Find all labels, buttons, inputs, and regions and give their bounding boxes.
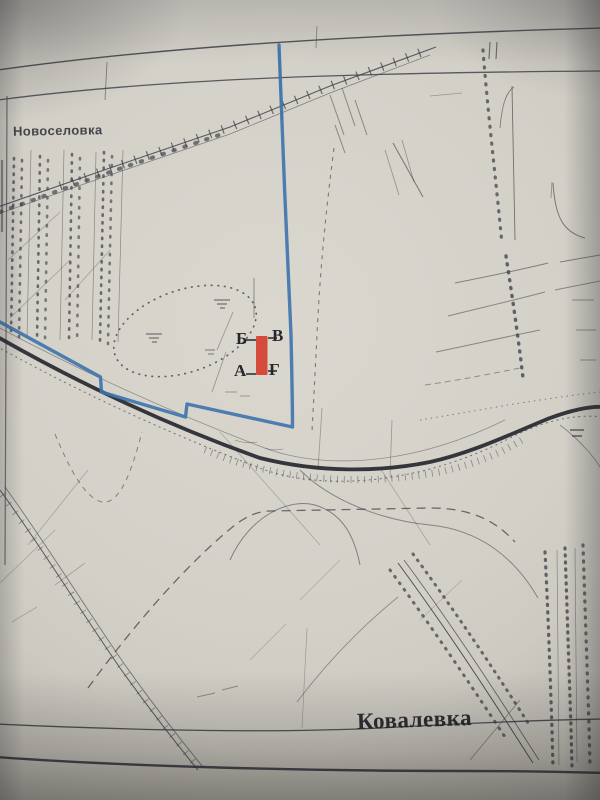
label-kovalevka: Ковалевка [357,705,473,735]
main-road [0,326,600,481]
dotted-path-center [312,148,392,477]
label-novoselovka: Новоселовка [13,122,103,139]
profile-letter-bottom-left: А [234,361,246,381]
map-linework [0,0,600,800]
orchard-area [8,150,123,344]
map-frame-lines [0,26,600,565]
map-photo: Новоселовка Ковалевка Б В А Г [0,0,600,800]
profile-letter-top-right: В [272,326,283,346]
profile-letter-bottom-right: Г [269,360,280,380]
route-line-blue [0,45,293,427]
profile-letter-top-left: Б [236,329,247,349]
contour-marks-right [420,50,600,420]
bottom-right-tree-road [297,545,590,768]
dashed-field-roads [55,432,538,697]
